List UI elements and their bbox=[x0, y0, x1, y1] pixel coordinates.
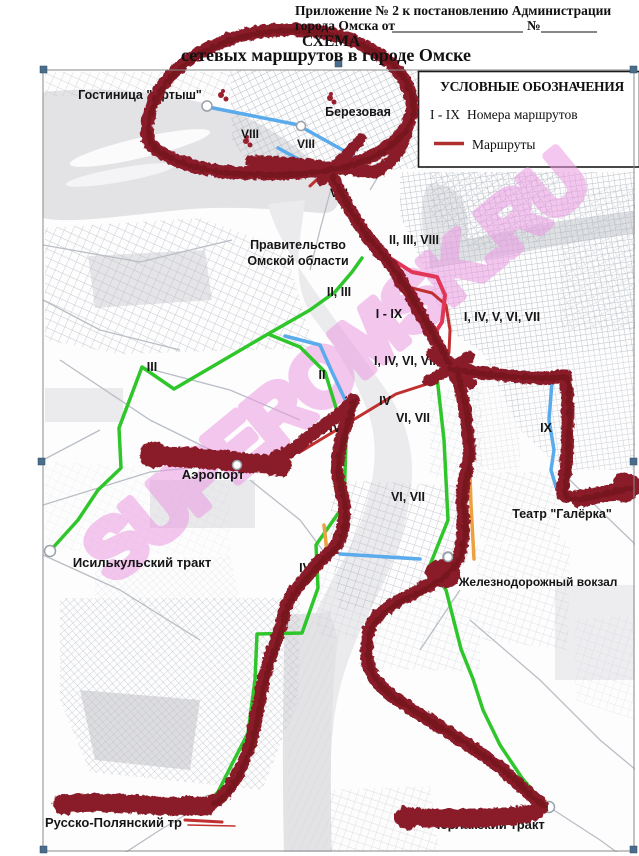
svg-text:Приложение № 2 к постановлению: Приложение № 2 к постановлению Администр… bbox=[295, 3, 611, 18]
svg-text:VI, VII: VI, VII bbox=[396, 411, 430, 425]
svg-text:УСЛОВНЫЕ ОБОЗНАЧЕНИЯ: УСЛОВНЫЕ ОБОЗНАЧЕНИЯ bbox=[440, 79, 624, 94]
svg-text:I, IV, V, VI, VII: I, IV, V, VI, VII bbox=[464, 310, 540, 324]
svg-text:№: № bbox=[527, 18, 541, 33]
svg-text:Правительство: Правительство bbox=[250, 238, 346, 252]
svg-text:Омской области: Омской области bbox=[247, 254, 348, 268]
svg-text:Номера маршрутов: Номера маршрутов bbox=[467, 107, 578, 122]
svg-text:I - IX: I - IX bbox=[430, 107, 460, 122]
svg-text:Русско-Полянский тр: Русско-Полянский тр bbox=[45, 815, 182, 830]
svg-text:IV: IV bbox=[379, 394, 391, 408]
svg-text:III: III bbox=[147, 360, 157, 374]
svg-text:IX: IX bbox=[540, 421, 552, 435]
svg-text:II, III, VIII: II, III, VIII bbox=[389, 233, 439, 247]
svg-text:Березовая: Березовая bbox=[325, 105, 391, 119]
svg-text:VIII: VIII bbox=[297, 137, 315, 151]
svg-text:VI, VII: VI, VII bbox=[391, 490, 425, 504]
svg-text:Железнодорожный вокзал: Железнодорожный вокзал bbox=[458, 575, 618, 589]
svg-text:I - IX: I - IX bbox=[376, 307, 403, 321]
svg-text:города Омска от: города Омска от bbox=[295, 18, 395, 33]
svg-text:II, III: II, III bbox=[327, 285, 351, 299]
svg-text:Гостиница "Иртыш": Гостиница "Иртыш" bbox=[78, 88, 202, 102]
svg-text:VIII: VIII bbox=[241, 127, 259, 141]
svg-text:Театр "Галёрка": Театр "Галёрка" bbox=[512, 507, 612, 521]
svg-text:Исилькульский тракт: Исилькульский тракт bbox=[73, 555, 211, 570]
svg-text:II: II bbox=[319, 368, 326, 382]
svg-text:сетевых маршрутов в городе Омс: сетевых маршрутов в городе Омске bbox=[181, 45, 471, 65]
